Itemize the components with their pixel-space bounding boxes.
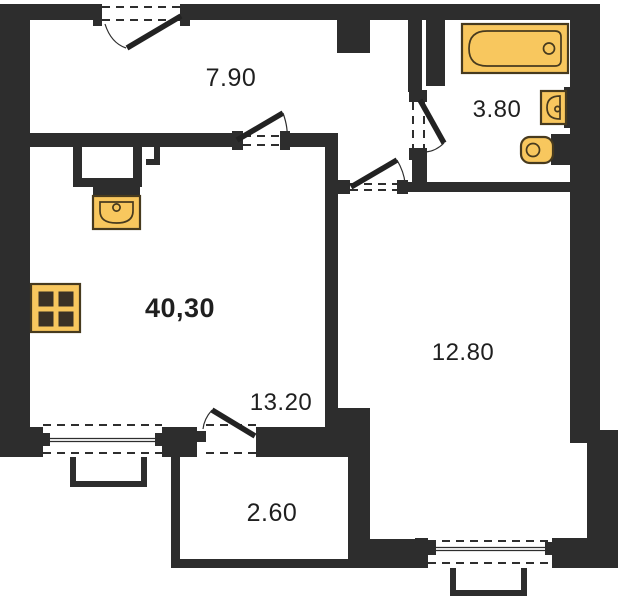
- bottomwall-jamb-left: [28, 427, 43, 457]
- bedroom-window: [428, 541, 553, 563]
- floor-plan: 7.90 3.80 40,30 13.20 12.80 2.60: [0, 0, 622, 600]
- wall-bath-hall-bar2: [426, 20, 445, 86]
- wall-bath-hall-bar1: [408, 20, 422, 92]
- entrance-opening-dashes: [102, 7, 180, 20]
- kitchen-window-glazing: [50, 439, 155, 442]
- bathtub: [462, 24, 568, 73]
- hall-livingroom-door: [237, 113, 287, 145]
- bedroom-door-arc: [397, 160, 405, 183]
- washbasin: [541, 87, 570, 128]
- bedroom-door-leaf: [351, 160, 397, 187]
- balcony-door-tick: [197, 431, 206, 442]
- kitchen-window-ledge: [73, 457, 144, 484]
- entrance-jamb-left: [93, 4, 102, 26]
- bedroom-bottomwall-right: [552, 538, 618, 568]
- balcony-door-arc: [203, 410, 212, 429]
- bathroom-door: [413, 100, 444, 152]
- wall-hall-main-left: [0, 133, 232, 147]
- entrance-door: [102, 7, 181, 48]
- wall-left: [0, 4, 30, 457]
- balcony-wall-bottom: [171, 559, 370, 568]
- stove: [31, 284, 80, 332]
- bedroom-window-glazing: [436, 548, 545, 551]
- wall-bathroom-bottom: [405, 182, 570, 192]
- kitchen-sink: [93, 183, 140, 229]
- area-label-living-kitchen: 13.20: [250, 389, 313, 416]
- bedroom-door: [350, 160, 405, 190]
- bedroom-window-tick-left: [428, 542, 436, 555]
- stove-burner: [59, 312, 74, 327]
- washbasin-body: [541, 91, 566, 124]
- vent-notch-right: [154, 143, 160, 165]
- stove-burner: [59, 292, 74, 307]
- toilet: [521, 134, 570, 165]
- area-label-bathroom: 3.80: [473, 96, 522, 123]
- floor-plan-canvas: 7.90 3.80 40,30 13.20 12.80 2.60: [0, 0, 622, 600]
- kitchen-window: [43, 425, 162, 453]
- wall-divider-lower: [348, 457, 370, 568]
- wall-right-upper: [570, 18, 600, 443]
- bottomwall-right: [256, 427, 370, 457]
- bedroom-window-tick-right: [545, 542, 553, 555]
- bedroom-window-jamb-left: [415, 538, 428, 568]
- kitchen-window-tick-right: [155, 433, 162, 446]
- bedroom-window-dashes: [428, 541, 553, 563]
- wall-bath-hall-lower: [412, 158, 427, 186]
- area-label-hallway: 7.90: [206, 64, 257, 92]
- kitchen-sink-mount: [93, 183, 140, 196]
- kitchen-window-tick-left: [43, 433, 50, 446]
- hall-door-dashes: [243, 136, 280, 145]
- bedroom-door-jamb-left: [338, 180, 350, 194]
- vent-shaft-wall-right: [133, 143, 142, 187]
- bath-door-jamb-top: [409, 90, 427, 102]
- entrance-jamb-right: [180, 4, 190, 26]
- stove-burner: [39, 312, 54, 327]
- bottomwall-mid: [162, 427, 197, 457]
- balcony-wall-left: [171, 455, 180, 568]
- area-label-bedroom: 12.80: [432, 339, 495, 366]
- balcony-door-leaf: [212, 410, 255, 436]
- bedroom-window-ledge: [453, 568, 524, 593]
- entrance-door-arc: [105, 24, 126, 48]
- area-label-balcony: 2.60: [247, 499, 298, 527]
- area-label-total: 40,30: [145, 293, 215, 323]
- stove-burner: [39, 292, 54, 307]
- bedroom-bottomwall-left: [370, 539, 415, 568]
- wall-stub-top: [337, 20, 370, 53]
- bathroom-door-arc: [426, 143, 444, 152]
- balcony-door: [203, 410, 256, 453]
- wall-top-right: [180, 4, 600, 20]
